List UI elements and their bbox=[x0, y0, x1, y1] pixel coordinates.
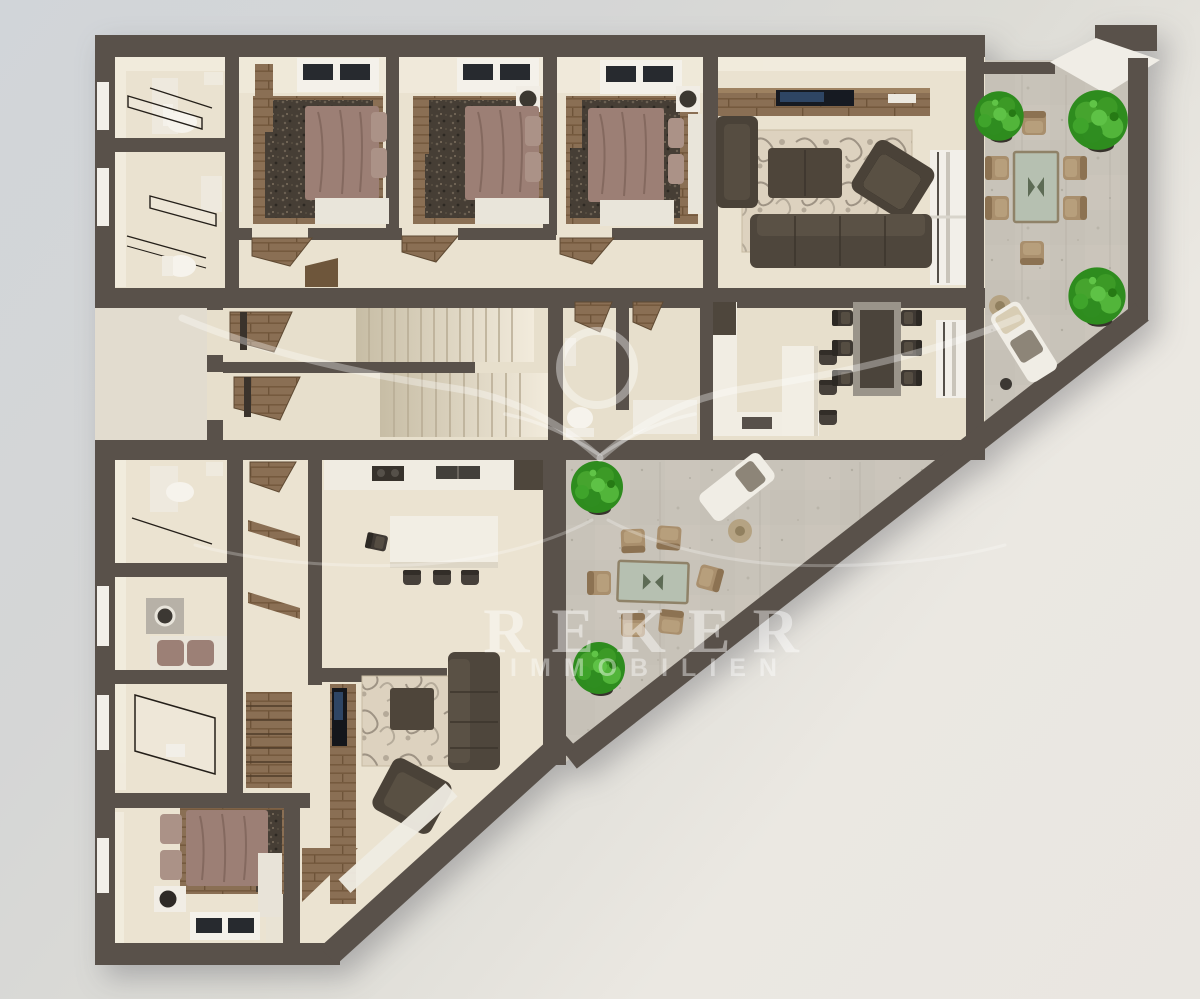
outdoor-chair bbox=[985, 196, 1009, 220]
cushion bbox=[157, 640, 184, 666]
bench bbox=[475, 198, 549, 224]
outdoor-chair bbox=[985, 156, 1009, 180]
shelf bbox=[413, 96, 429, 154]
entrance-landing bbox=[95, 302, 207, 460]
cushion bbox=[187, 640, 214, 666]
chair bbox=[832, 310, 853, 326]
kitchen-island bbox=[390, 516, 498, 568]
bar-stool bbox=[433, 570, 451, 585]
wardrobe bbox=[258, 853, 282, 917]
bench bbox=[315, 198, 389, 224]
dining-window bbox=[936, 320, 966, 398]
chair bbox=[901, 370, 922, 386]
tall-cabinet bbox=[713, 302, 736, 335]
pillow bbox=[371, 112, 387, 142]
outdoor-chair bbox=[1063, 156, 1087, 180]
pillow bbox=[160, 814, 182, 844]
pillow bbox=[371, 148, 387, 178]
building bbox=[95, 25, 1160, 965]
floorplan-render: REKER IMMOBILIEN bbox=[0, 0, 1200, 999]
stairs-down bbox=[246, 692, 292, 788]
tall-cabinet bbox=[514, 460, 543, 490]
pillow bbox=[668, 118, 684, 148]
bar-stool bbox=[461, 570, 479, 585]
chair bbox=[832, 340, 853, 356]
pillow bbox=[525, 116, 541, 146]
chair bbox=[901, 310, 922, 326]
lamp bbox=[678, 89, 698, 109]
kitchen-island bbox=[782, 346, 818, 436]
bench bbox=[600, 200, 674, 226]
pillow bbox=[668, 154, 684, 184]
sink bbox=[204, 72, 223, 85]
bar-stool bbox=[403, 570, 421, 585]
bed bbox=[186, 810, 268, 886]
sink bbox=[166, 744, 185, 757]
counter bbox=[324, 460, 514, 490]
floorplan-svg: REKER IMMOBILIEN bbox=[0, 0, 1200, 999]
pillow bbox=[525, 152, 541, 182]
ottoman bbox=[390, 688, 434, 730]
sofa bbox=[750, 214, 932, 268]
sofa bbox=[448, 652, 500, 770]
lamp bbox=[158, 889, 178, 909]
toilet bbox=[567, 407, 593, 429]
outdoor-chair bbox=[1022, 111, 1046, 135]
sink bbox=[206, 462, 223, 476]
pillow bbox=[160, 850, 182, 880]
outdoor-chair bbox=[1020, 241, 1044, 265]
wardrobe bbox=[688, 114, 702, 214]
outdoor-chair bbox=[587, 571, 611, 595]
bar-stool bbox=[819, 410, 837, 425]
cooktop bbox=[372, 466, 404, 481]
shelf bbox=[566, 96, 582, 148]
outdoor-table bbox=[1014, 152, 1058, 222]
wardrobe bbox=[255, 64, 273, 132]
living-room-window bbox=[930, 150, 966, 285]
living-room-top bbox=[716, 88, 938, 268]
outdoor-chair bbox=[1063, 196, 1087, 220]
watermark-subtitle: IMMOBILIEN bbox=[510, 654, 790, 682]
sink bbox=[201, 176, 222, 212]
toilet bbox=[166, 482, 194, 502]
kitchen-sink bbox=[742, 417, 772, 429]
